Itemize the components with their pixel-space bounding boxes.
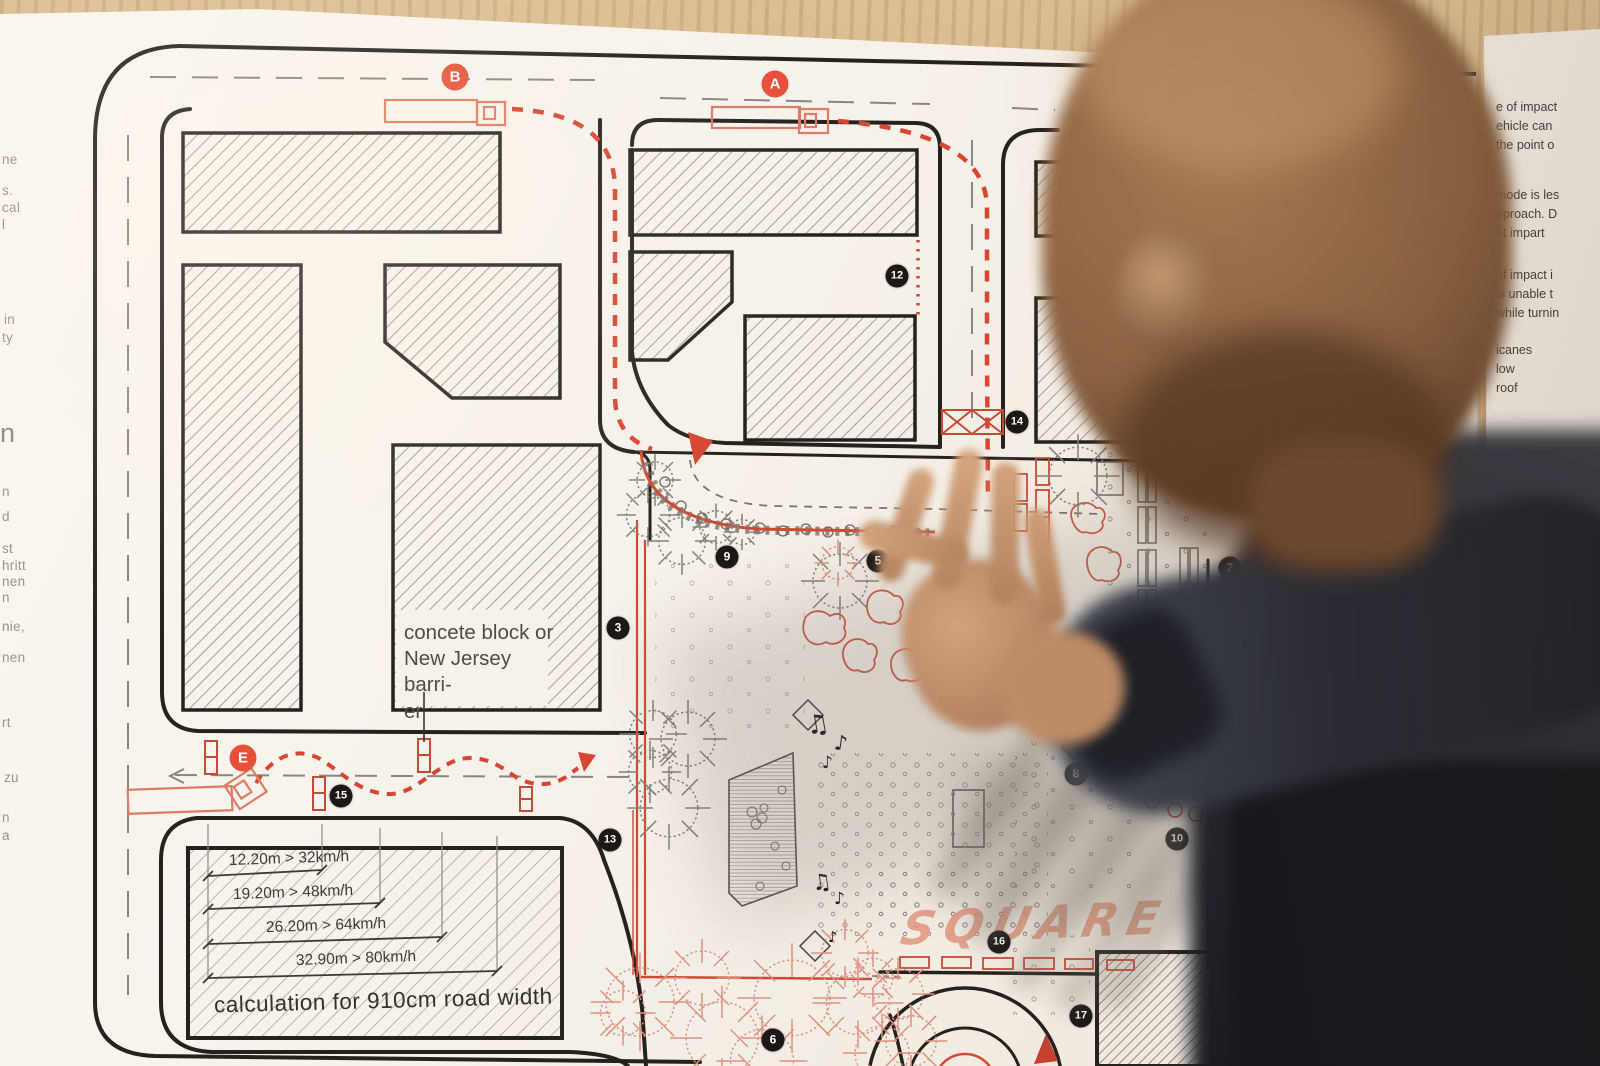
route-badge-a: A [762, 71, 789, 98]
route-arrow-right [578, 752, 596, 772]
presenter-neck [1250, 440, 1440, 570]
left-text-fragment: ne [2, 152, 18, 167]
route-badge-e: E [230, 745, 257, 772]
left-text-fragment: d [2, 509, 10, 524]
barrier-note: concete block or New Jersey barri- er [404, 620, 564, 725]
plan-marker-12: 12 [886, 265, 909, 288]
presenter-wrist [1000, 630, 1125, 745]
left-text-fragment: n [2, 590, 10, 605]
presenter-suit-lower [1230, 760, 1600, 1066]
plan-marker-14: 14 [1006, 411, 1029, 434]
presenter-finger [990, 462, 1020, 604]
right-text-paragraph: e of impact ehicle can the point o [1496, 98, 1600, 154]
left-text-fragment: zu [4, 770, 19, 785]
left-text-fragment: a [2, 828, 10, 843]
left-text-fragment: st [2, 541, 13, 556]
plan-marker-15: 15 [330, 785, 353, 808]
left-text-fragment: n [0, 418, 15, 449]
left-text-fragment: ty [2, 330, 13, 345]
plan-marker-13: 13 [599, 829, 622, 852]
left-text-fragment: cal [2, 200, 20, 215]
left-text-fragment: l [2, 217, 5, 232]
plan-marker-9: 9 [716, 546, 739, 569]
left-text-fragment: n [2, 810, 10, 825]
left-text-fragment: nie, [2, 619, 25, 634]
svg-text:♪: ♪ [828, 928, 838, 946]
route-badge-b: B [442, 64, 469, 91]
plan-marker-6: 6 [762, 1029, 785, 1052]
left-text-fragment: nen [2, 650, 25, 665]
left-text-fragment: nen [2, 574, 25, 589]
plan-marker-3: 3 [607, 617, 630, 640]
left-text-fragment: hritt [2, 558, 26, 573]
left-text-fragment: n [2, 484, 10, 499]
right-text-paragraph: icanes low roof [1496, 341, 1600, 397]
truck-e [128, 768, 267, 814]
route-arrow-down [688, 432, 713, 465]
left-text-fragment: rt [2, 715, 11, 730]
truck-b [385, 100, 505, 125]
photo-of-site-plan-presentation: ♫ ♪ ♪ ♫ ♪ ♪ concete block or New Jersey … [0, 0, 1600, 1066]
left-text-fragment: s. [2, 183, 13, 198]
left-text-fragment: in [4, 312, 15, 327]
